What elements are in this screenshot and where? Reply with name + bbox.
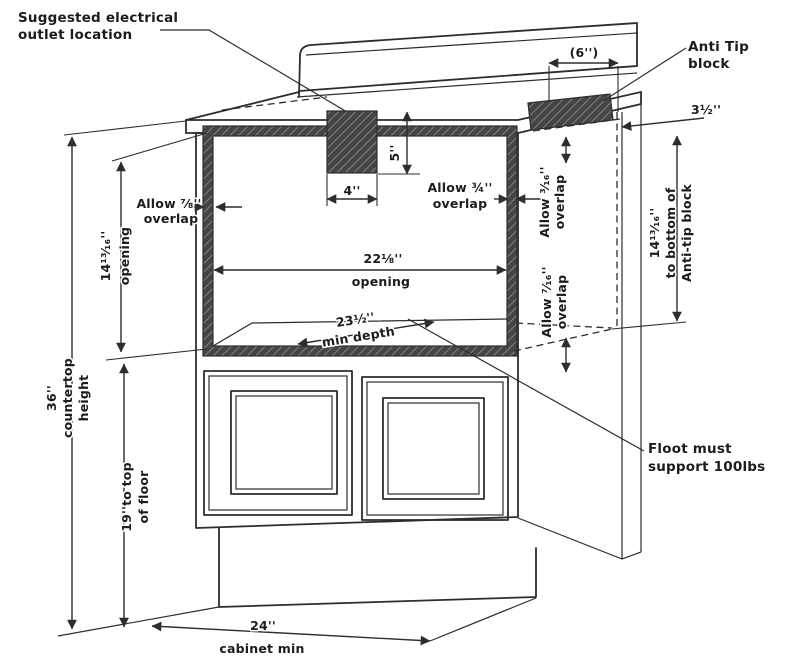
label-allow-left-2: overlap [144, 211, 198, 226]
label-anti-tip-height-2: to bottom of [663, 187, 678, 278]
label-countertop-height-3: height [76, 375, 91, 422]
label-allow-right-2: overlap [433, 196, 487, 211]
dim-overhang-3-5in [622, 118, 704, 127]
label-opening-width: 22⅛'' [364, 251, 403, 266]
label-anti-tip-height-3: Anti-tip block [679, 184, 694, 282]
label-dim-6in: (6'') [570, 45, 599, 60]
cabinet-base [58, 528, 536, 641]
label-anti-tip-height: 14¹³⁄₁₆'' [647, 208, 662, 259]
label-electrical-outlet-2: outlet location [18, 27, 132, 43]
label-opening-height-2: opening [117, 227, 132, 285]
label-floor-height-2: of floor [136, 470, 151, 524]
diagram-canvas: Suggested electrical outlet location Ant… [0, 0, 800, 663]
label-dim-4in: 4'' [344, 183, 361, 198]
label-opening-width-2: opening [352, 274, 410, 289]
cabinet-door-right [362, 377, 508, 520]
label-dim-3-5in: 3½'' [691, 102, 721, 117]
label-allow-7-16-2: overlap [554, 275, 569, 329]
label-floor-height: 19''to top [119, 462, 134, 531]
label-allow-3-16: Allow ³⁄₁₆'' [537, 166, 552, 237]
label-dim-5in: 5'' [387, 145, 402, 162]
leader-electrical-outlet [160, 30, 347, 112]
label-countertop-height-2: countertop [60, 358, 75, 438]
label-cabinet-min: 24'' [250, 618, 276, 633]
label-allow-right: Allow ¾'' [427, 180, 492, 195]
leader-floor-support [408, 319, 644, 451]
electrical-outlet-block [327, 111, 377, 173]
label-anti-tip: Anti Tip [688, 39, 749, 55]
label-countertop-height: 36'' [44, 385, 59, 411]
dim-cabinet-min-24 [152, 626, 430, 641]
label-floor-support: Floot must [648, 441, 732, 457]
dim-outlet-height-5 [378, 112, 420, 174]
label-allow-3-16-2: overlap [552, 175, 567, 229]
label-anti-tip-2: block [688, 56, 730, 72]
labels: Suggested electrical outlet location Ant… [18, 10, 765, 656]
label-floor-support-2: support 100lbs [648, 459, 765, 475]
backsplash [297, 23, 637, 97]
label-allow-left: Allow ⅞'' [136, 196, 201, 211]
label-cabinet-min-2: cabinet min [219, 641, 304, 656]
installation-diagram: Suggested electrical outlet location Ant… [0, 0, 800, 663]
label-opening-height: 14¹³⁄₁₆'' [98, 231, 113, 282]
label-allow-7-16: Allow ⁷⁄₁₆'' [539, 266, 554, 337]
label-electrical-outlet: Suggested electrical [18, 10, 178, 26]
anti-tip-block [528, 94, 613, 130]
cabinet-door-left [204, 371, 352, 515]
